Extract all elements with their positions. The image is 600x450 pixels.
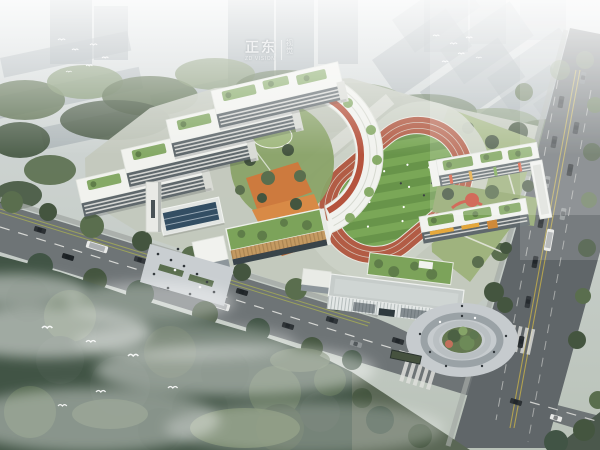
watermark-seal-bottom: 觉 <box>286 48 293 56</box>
scene <box>0 0 600 450</box>
watermark: 正东 ZD VISION 视 觉 <box>245 40 293 62</box>
watermark-brand: 正东 <box>245 40 277 54</box>
circular-plaza <box>406 303 518 377</box>
aerial-rendering: 正东 ZD VISION 视 觉 <box>0 0 600 450</box>
right-haze-2 <box>520 0 600 260</box>
watermark-left: 正东 ZD VISION <box>245 40 277 62</box>
campus-tower <box>146 182 161 232</box>
watermark-subtext: ZD VISION <box>245 56 277 62</box>
watermark-seal: 视 觉 <box>286 40 293 57</box>
watermark-divider <box>281 40 282 60</box>
